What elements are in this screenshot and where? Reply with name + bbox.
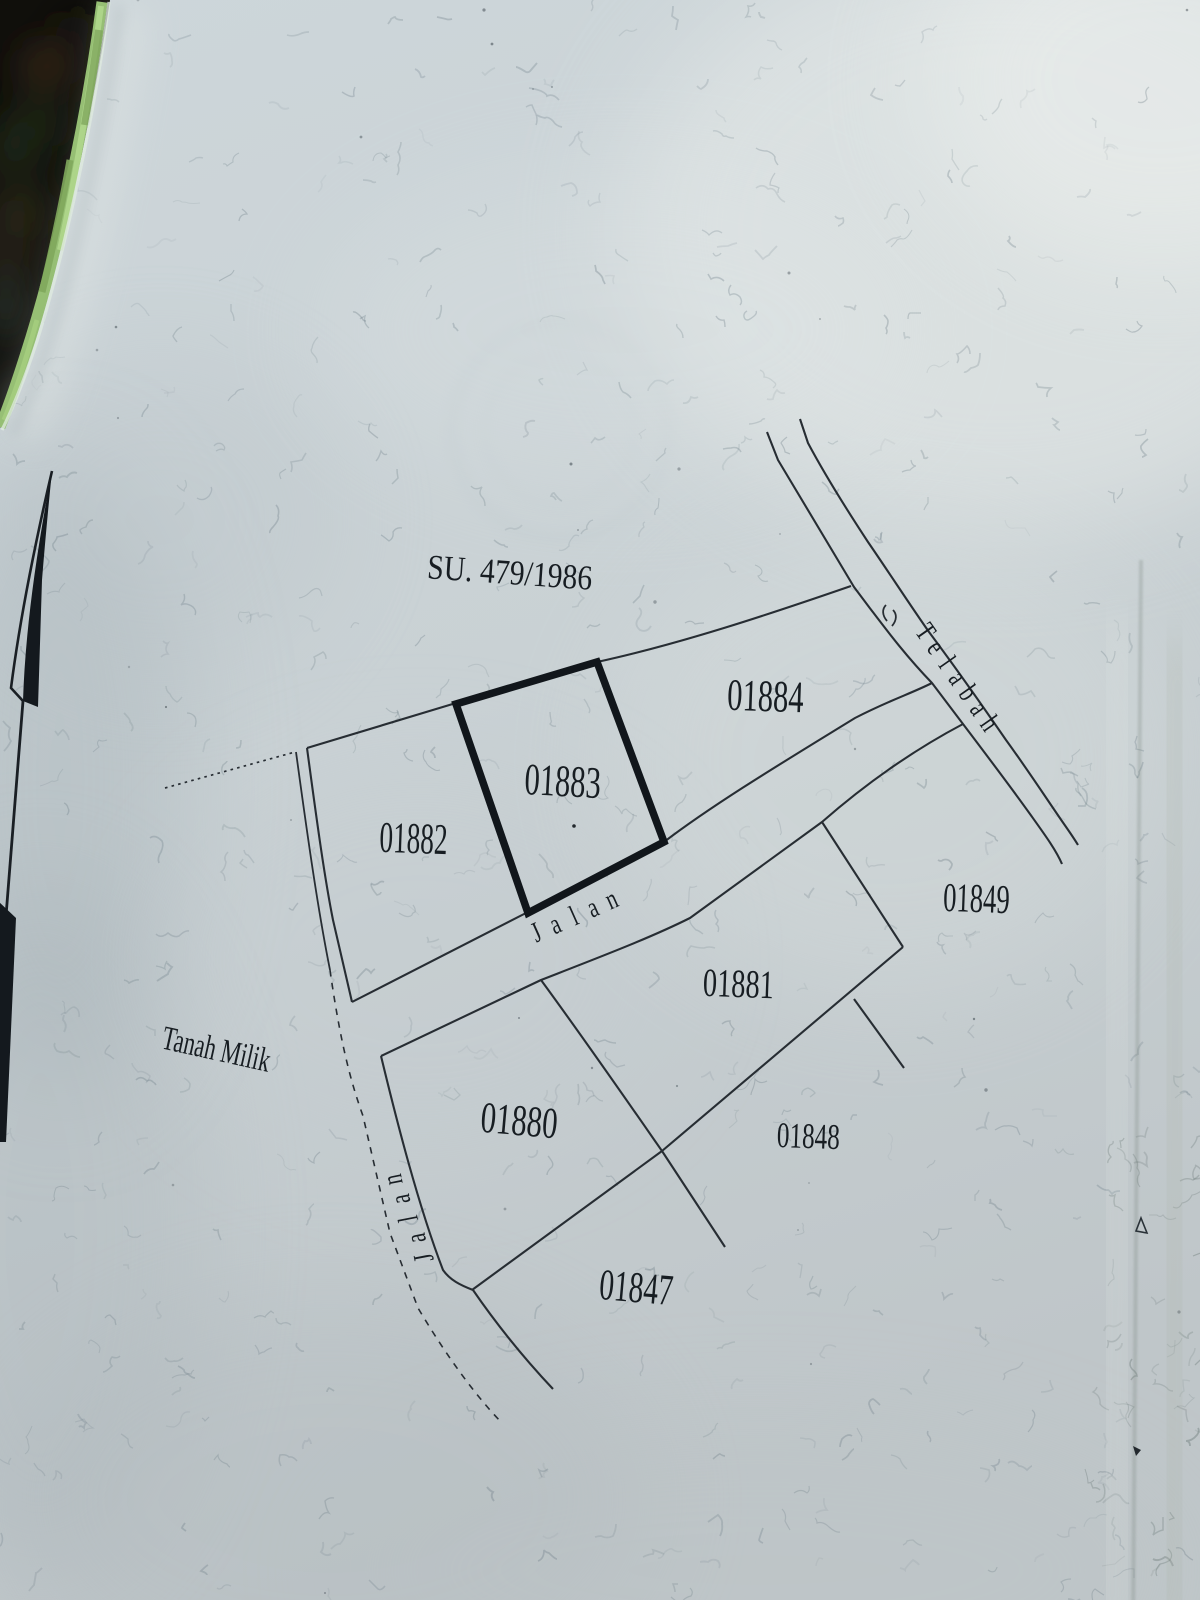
svg-text:01880: 01880 <box>479 1094 560 1149</box>
svg-text:01849: 01849 <box>942 875 1010 922</box>
svg-text:01884: 01884 <box>726 671 804 723</box>
svg-text:01883: 01883 <box>523 755 602 808</box>
svg-text:01882: 01882 <box>379 812 449 864</box>
svg-text:01847: 01847 <box>597 1261 675 1315</box>
svg-text:01848: 01848 <box>776 1114 840 1157</box>
svg-text:01881: 01881 <box>702 960 774 1007</box>
